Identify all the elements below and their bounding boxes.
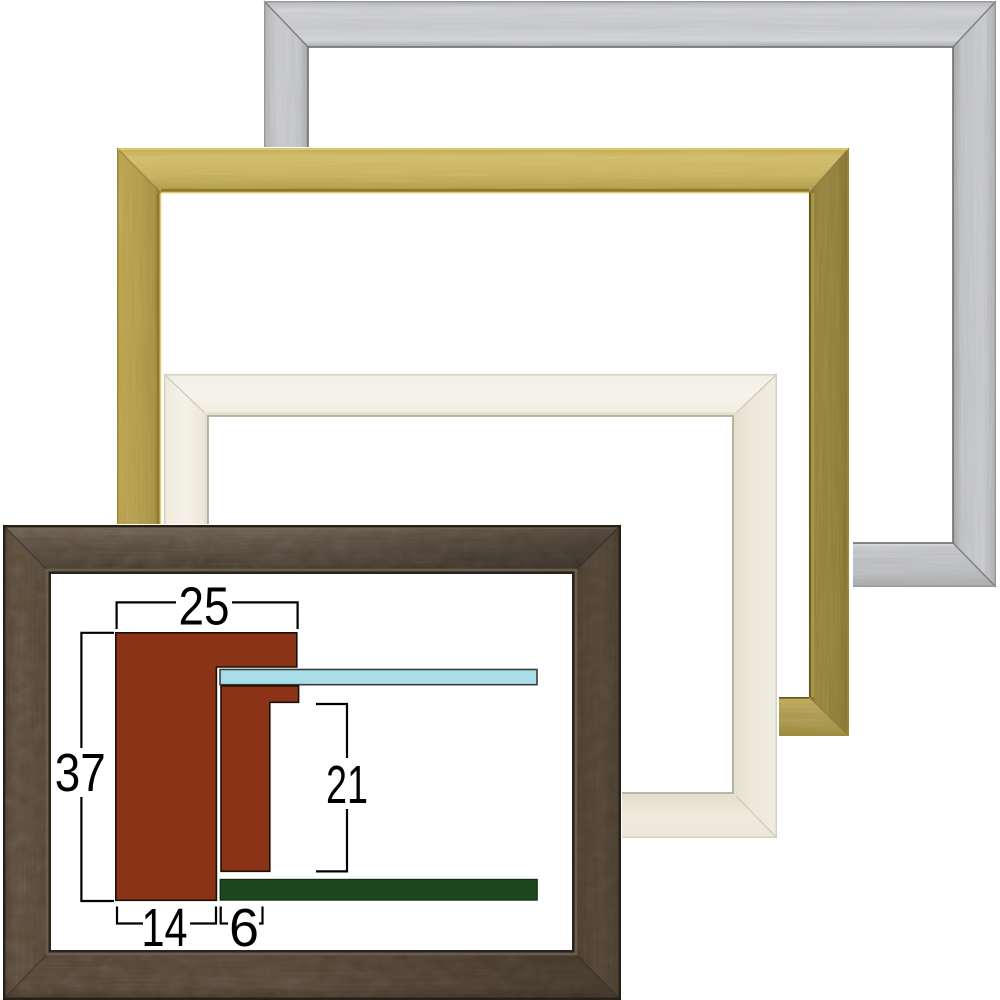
svg-text:6: 6 [229, 898, 259, 958]
svg-text:37: 37 [55, 743, 106, 803]
svg-text:14: 14 [142, 898, 188, 958]
svg-text:25: 25 [179, 577, 230, 637]
svg-text:21: 21 [326, 755, 368, 815]
